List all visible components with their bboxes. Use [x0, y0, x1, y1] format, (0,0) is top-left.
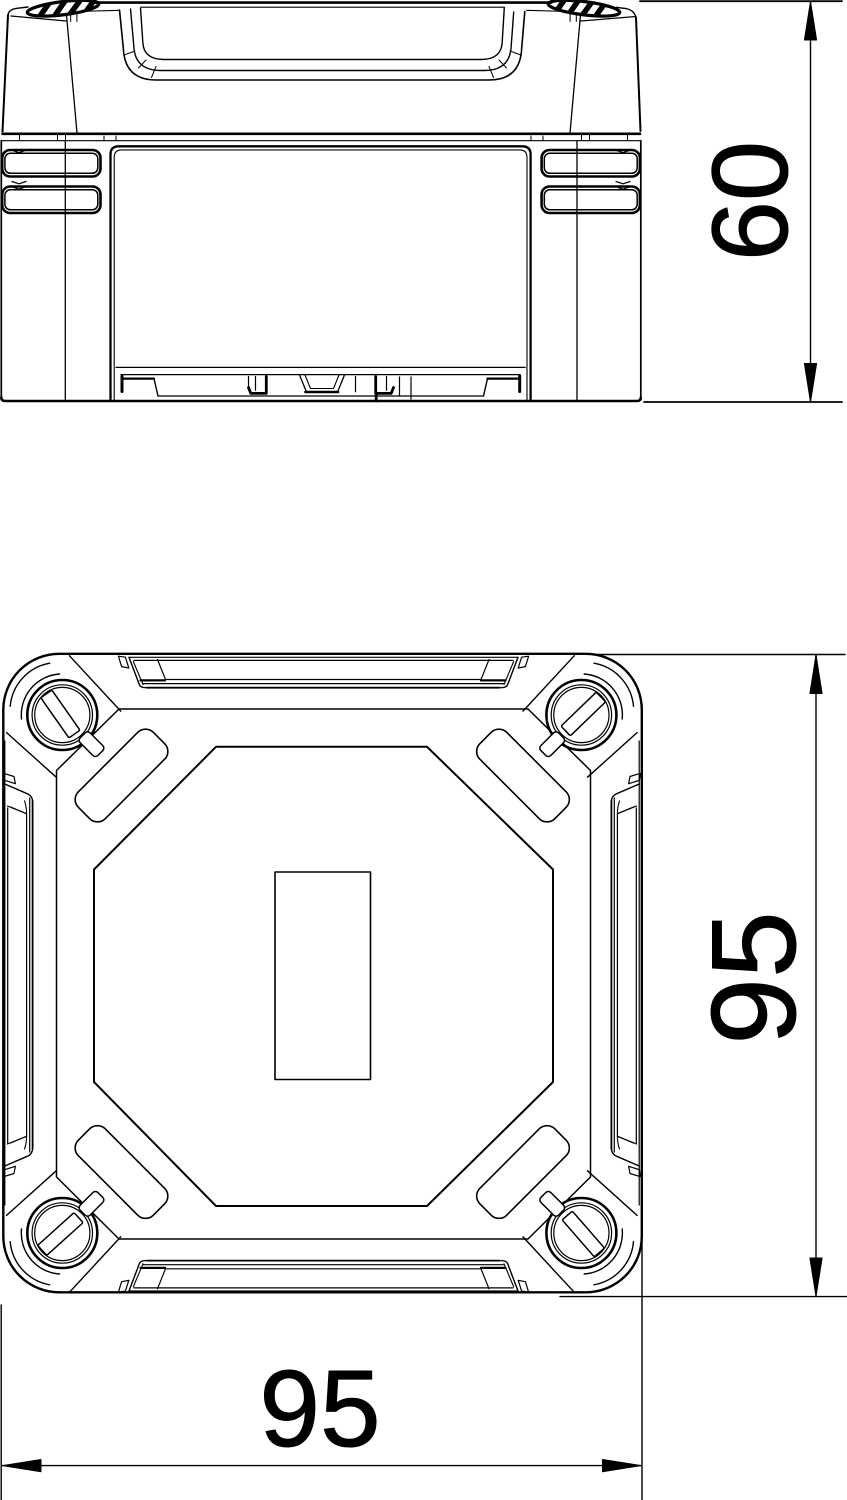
svg-text:95: 95	[259, 1348, 380, 1470]
svg-text:60: 60	[689, 141, 810, 261]
svg-text:95: 95	[687, 911, 821, 1044]
